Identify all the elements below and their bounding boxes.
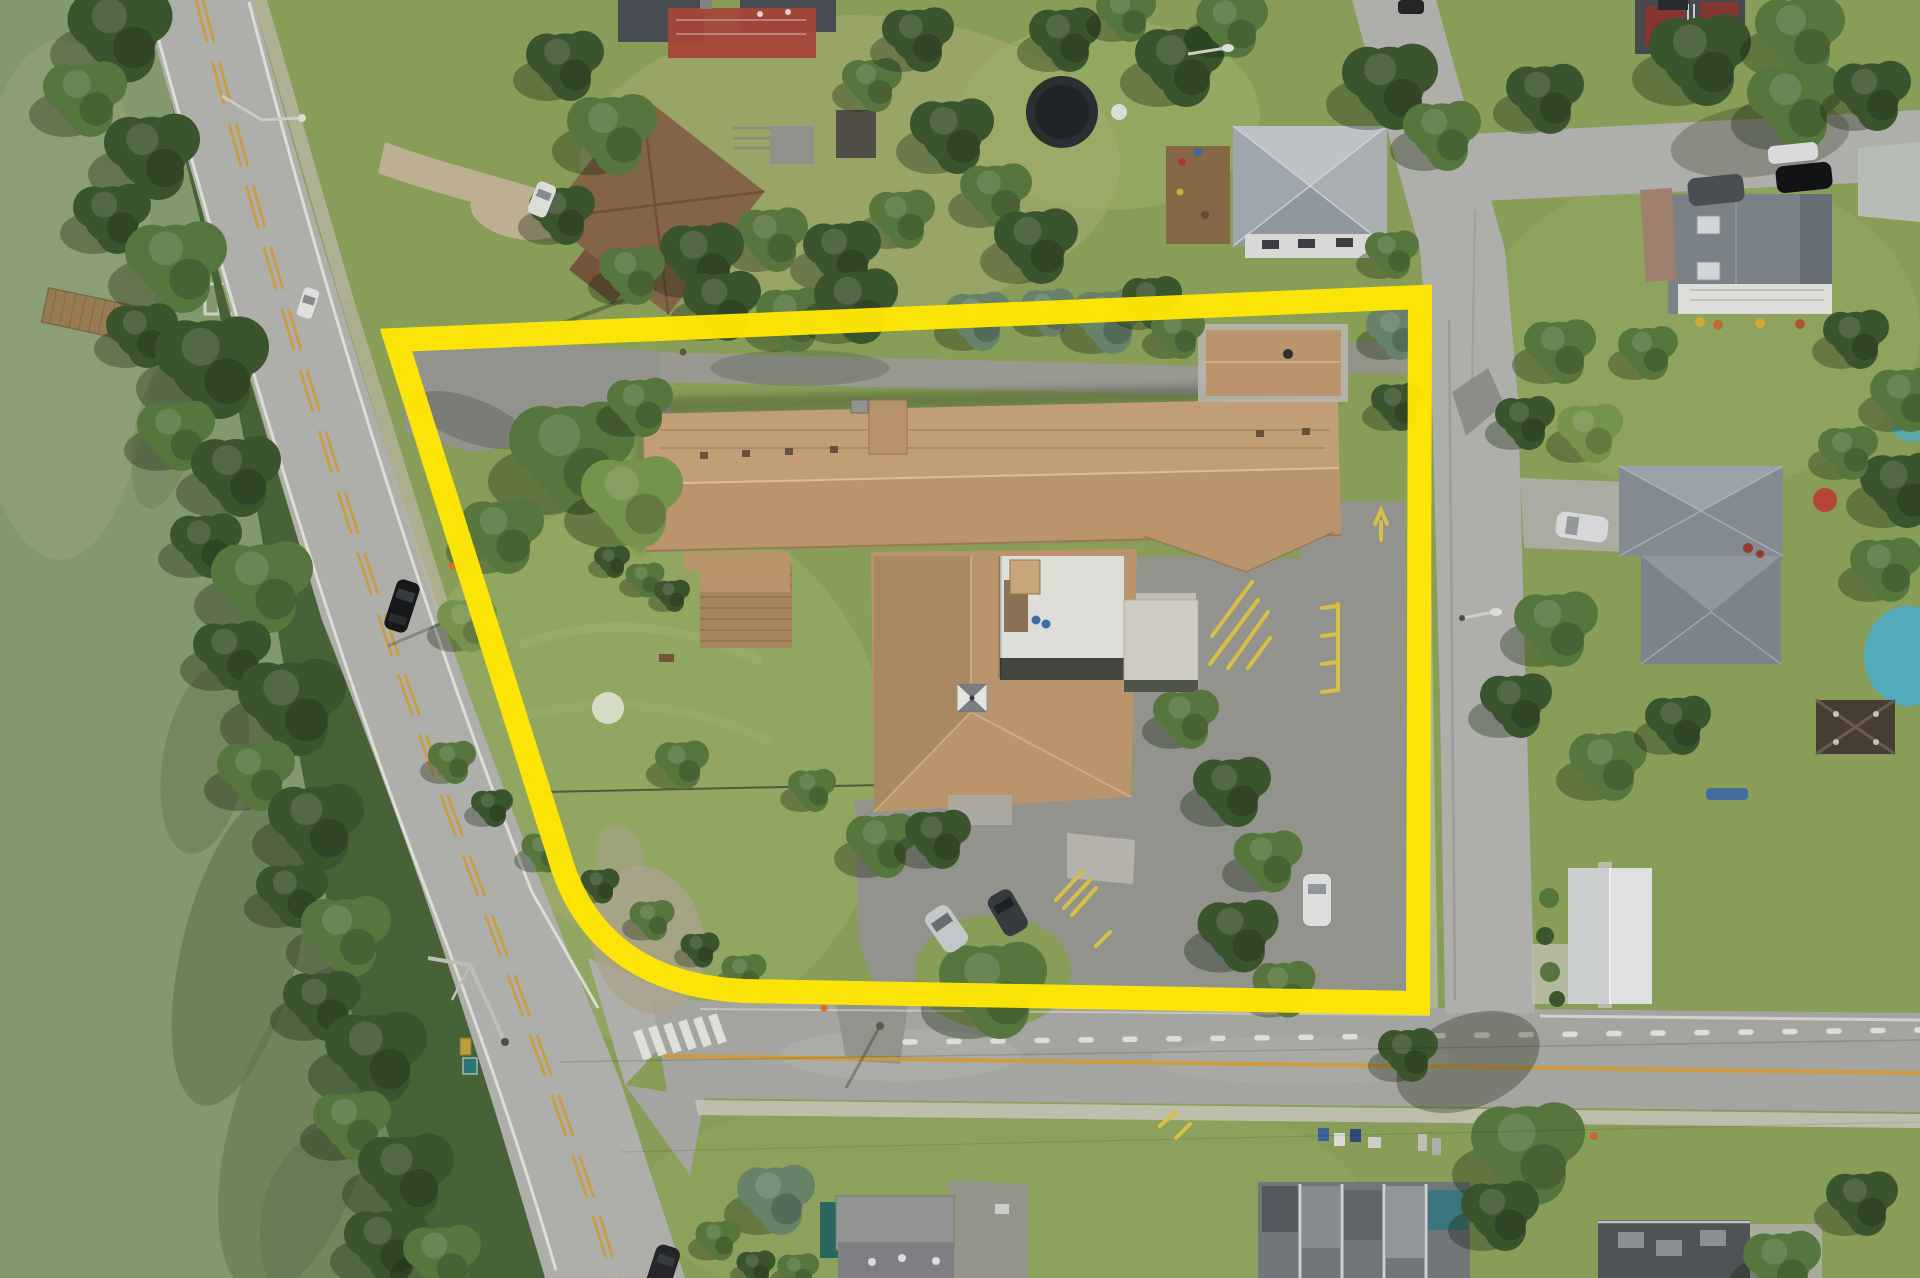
- photo-grain: [0, 0, 1920, 1278]
- aerial-photo: [0, 0, 1920, 1278]
